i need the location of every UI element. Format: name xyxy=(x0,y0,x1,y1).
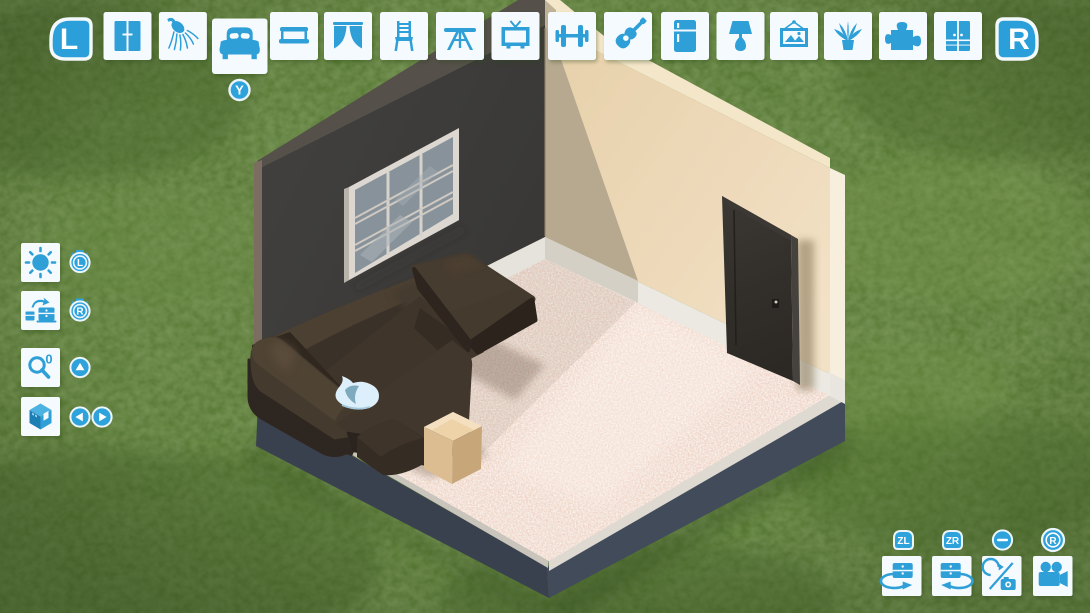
svg-text:L: L xyxy=(60,23,78,56)
svg-text:Y: Y xyxy=(235,83,244,98)
svg-text:0: 0 xyxy=(45,352,52,367)
svg-text:L: L xyxy=(77,258,83,269)
svg-text:ZL: ZL xyxy=(897,536,909,547)
svg-text:R: R xyxy=(1008,23,1030,56)
svg-text:ZR: ZR xyxy=(946,536,960,547)
svg-text:R: R xyxy=(1049,536,1057,547)
svg-text:R: R xyxy=(76,307,84,318)
